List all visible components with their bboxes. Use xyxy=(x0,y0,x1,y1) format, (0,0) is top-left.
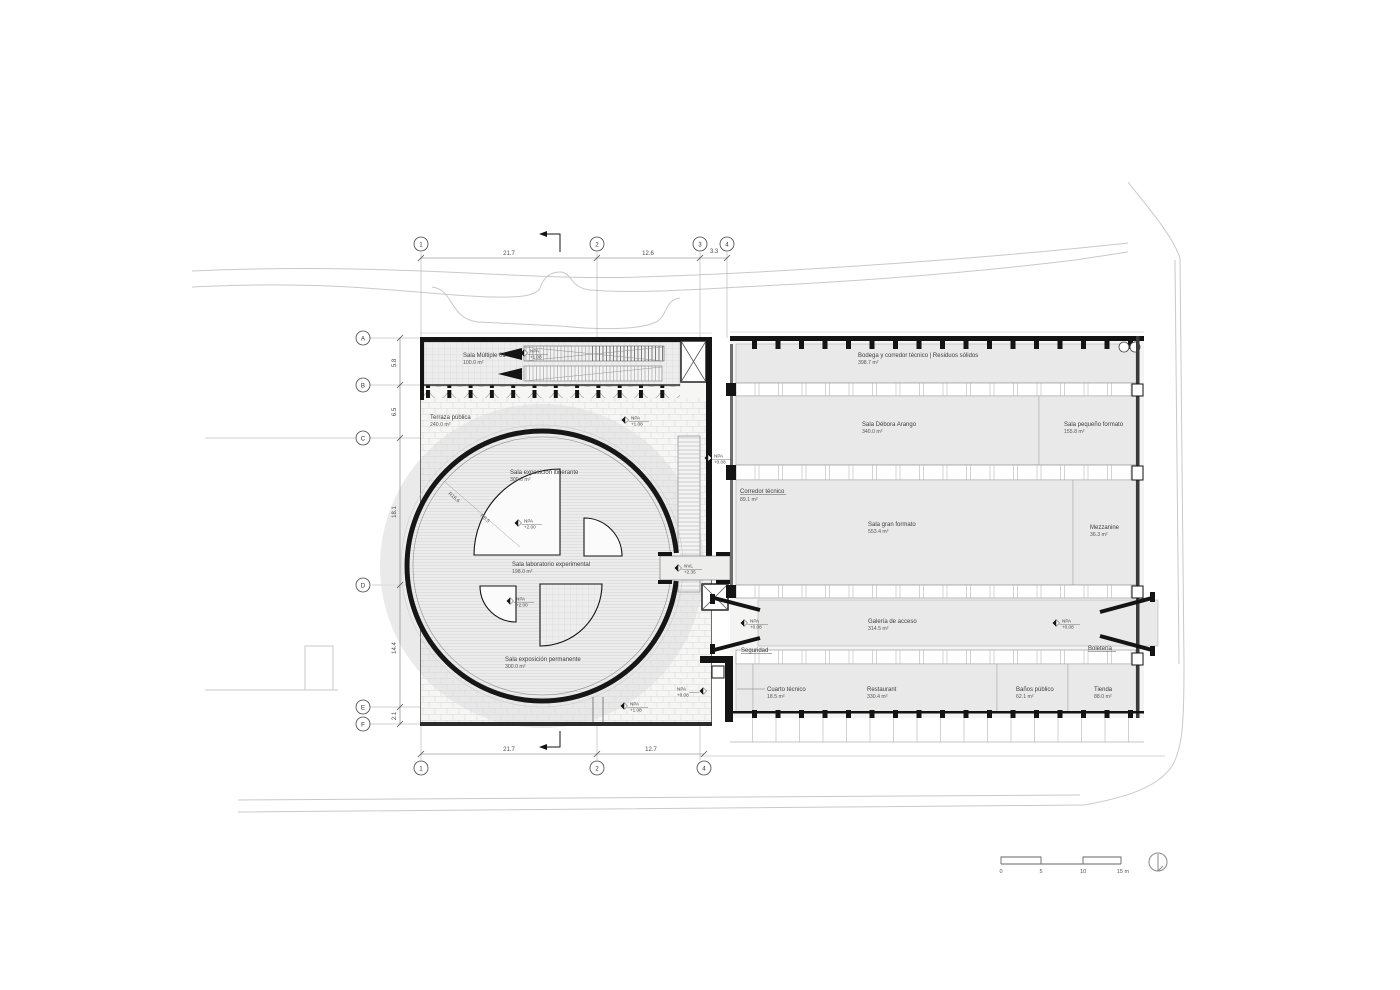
scale-tick-label: 0 xyxy=(999,869,1002,875)
floor-plan-page: Sala Múltiple 01 100.0 m² Terraza públic… xyxy=(0,0,1400,990)
marker-ref: NPA xyxy=(524,519,534,524)
label-galeria: Galería de acceso xyxy=(868,619,917,625)
marker-level: +0.08 xyxy=(714,460,726,465)
marker-ref: NPA xyxy=(677,687,687,692)
marker-level: +2.00 xyxy=(524,525,536,530)
area-gran: 553.4 m² xyxy=(868,529,889,535)
grid-bubble-label: 2 xyxy=(595,766,599,773)
area-terraza: 240.0 m² xyxy=(430,422,451,428)
room-gran-formato xyxy=(736,480,1073,585)
section-arrow-icon xyxy=(539,744,547,750)
right-building xyxy=(700,336,1158,742)
label-permanente: Sala exposición permanente xyxy=(505,657,581,663)
dim-text: 21.7 xyxy=(503,251,515,257)
room-debora-arango xyxy=(736,396,1039,465)
marker-level: +1.08 xyxy=(630,708,642,713)
area-cuarto: 18.5 m² xyxy=(767,694,785,700)
area-restaurant: 330.4 m² xyxy=(867,694,888,700)
scale-tick-label: 10 xyxy=(1080,869,1086,875)
north-arrow-icon xyxy=(1149,853,1167,871)
grid-bubble-label: E xyxy=(361,705,365,712)
scale-bar: 0 5 10 15 m xyxy=(999,857,1129,875)
area-corredor: 89.1 m² xyxy=(740,497,758,503)
grid-bubble-label: F xyxy=(361,722,365,729)
area-itinerante: 300.0 m² xyxy=(510,477,531,483)
area-laboratorio: 198.0 m² xyxy=(512,569,533,575)
grid-bubble-label: 4 xyxy=(702,766,706,773)
dim-text: 2.1 xyxy=(392,711,398,720)
marker-ref: NPA xyxy=(750,619,760,624)
grid-bubble-label: 1 xyxy=(419,242,423,249)
dim-text: 18.1 xyxy=(392,506,398,518)
wall-left xyxy=(420,337,424,400)
dimension-top: 1 2 3 4 21.7 12.6 3.3 xyxy=(414,237,734,261)
grid-bubble-label: D xyxy=(361,583,366,590)
column-row-bottom xyxy=(736,710,1136,718)
column-box xyxy=(1132,653,1143,665)
pergola-grid xyxy=(730,718,1144,742)
label-pequeno: Sala pequeño formato xyxy=(1064,422,1124,428)
marker-ref: NPA xyxy=(714,454,724,459)
dim-text: 5.8 xyxy=(392,358,398,367)
label-corredor: Corredor técnico xyxy=(740,489,785,495)
marker-level: +1.08 xyxy=(631,422,643,427)
area-pequeno: 155.8 m² xyxy=(1064,429,1085,435)
dimension-bottom: 1 2 4 21.7 12.7 xyxy=(414,747,711,775)
label-restaurant: Restaurant xyxy=(867,687,897,693)
scale-tick-label: 5 xyxy=(1039,869,1042,875)
label-terraza: Terraza pública xyxy=(430,415,471,421)
room-bodega xyxy=(736,344,1136,383)
label-sala-multiple: Sala Múltiple 01 xyxy=(463,353,506,359)
dim-text: 12.7 xyxy=(645,747,657,753)
marker-ref: NVL xyxy=(684,564,693,569)
marker-ref: NPA xyxy=(530,349,540,354)
roof-edge-line xyxy=(420,332,1144,333)
area-galeria: 314.5 m² xyxy=(868,626,889,632)
room-galeria-acceso xyxy=(758,600,1158,646)
elevator-shaft-top xyxy=(676,337,712,387)
area-permanente: 300.0 m² xyxy=(505,664,526,670)
scale-tick-label: 15 m xyxy=(1117,869,1130,875)
area-mezzanine: 36.3 m² xyxy=(1090,532,1108,538)
area-tienda: 88.0 m² xyxy=(1094,694,1112,700)
marker-level: +0.08 xyxy=(677,693,689,698)
grid-bubble-label: 4 xyxy=(725,242,729,249)
wall-right-upper xyxy=(706,387,712,563)
label-debora: Sala Débora Arango xyxy=(862,422,917,428)
grid-bubble-label: 1 xyxy=(419,766,423,773)
area-banos: 62.1 m² xyxy=(1016,694,1034,700)
marker-level: +2.00 xyxy=(516,603,528,608)
grid-bubble-label: 3 xyxy=(698,242,702,249)
marker-level: +0.08 xyxy=(1062,625,1074,630)
marker-ref: NPA xyxy=(630,702,640,707)
area-debora: 340.0 m² xyxy=(862,429,883,435)
label-cuarto: Cuarto técnico xyxy=(767,687,806,693)
section-arrow-icon xyxy=(539,231,547,237)
room-pequeno-formato xyxy=(1039,396,1136,465)
label-gran: Sala gran formato xyxy=(868,522,916,528)
dim-text: 6.5 xyxy=(392,407,398,416)
dim-text: 21.7 xyxy=(503,747,515,753)
area-sala-multiple: 100.0 m² xyxy=(463,360,484,366)
colonnade-row xyxy=(424,385,680,398)
column-box xyxy=(1132,466,1143,480)
label-boleteria: Boletería xyxy=(1088,646,1113,652)
room-cuarto-tecnico xyxy=(736,664,753,712)
marker-ref: NPA xyxy=(1062,619,1072,624)
dim-text: 14.4 xyxy=(392,642,398,654)
marker-level: +1.08 xyxy=(530,355,542,360)
floor-plan-drawing: Sala Múltiple 01 100.0 m² Terraza públic… xyxy=(0,0,1400,990)
grid-bubble-label: B xyxy=(361,383,365,390)
door-roll-icon xyxy=(1119,342,1129,352)
label-laboratorio: Sala laboratorio experimental xyxy=(512,562,590,568)
label-seguridad: Seguridad xyxy=(741,648,768,654)
column-row-top xyxy=(736,341,1136,349)
dim-text: 3.3 xyxy=(710,249,719,255)
marker-level: +0.08 xyxy=(750,625,762,630)
label-mezzanine: Mezzanine xyxy=(1090,525,1120,531)
wall-top-right-building xyxy=(730,336,1144,341)
column-box xyxy=(1132,384,1143,396)
wall-top-left-building xyxy=(420,337,682,342)
marker-ref: NPA xyxy=(516,597,526,602)
column-box xyxy=(1132,586,1143,598)
label-tienda: Tienda xyxy=(1094,687,1113,693)
wall-bottom-left-building xyxy=(420,722,712,726)
grid-bubble-label: C xyxy=(361,436,366,443)
marker-ref: NPA xyxy=(631,416,641,421)
label-itinerante: Sala exposición itinerante xyxy=(510,470,579,476)
area-bodega: 398.7 m² xyxy=(858,360,879,366)
dim-text: 12.6 xyxy=(642,251,654,257)
marker-level: +2.35 xyxy=(684,570,696,575)
grid-bubble-label: 2 xyxy=(595,242,599,249)
label-bodega: Bodega y corredor técnico | Residuos sól… xyxy=(858,353,978,359)
label-banos: Baños público xyxy=(1016,687,1054,693)
